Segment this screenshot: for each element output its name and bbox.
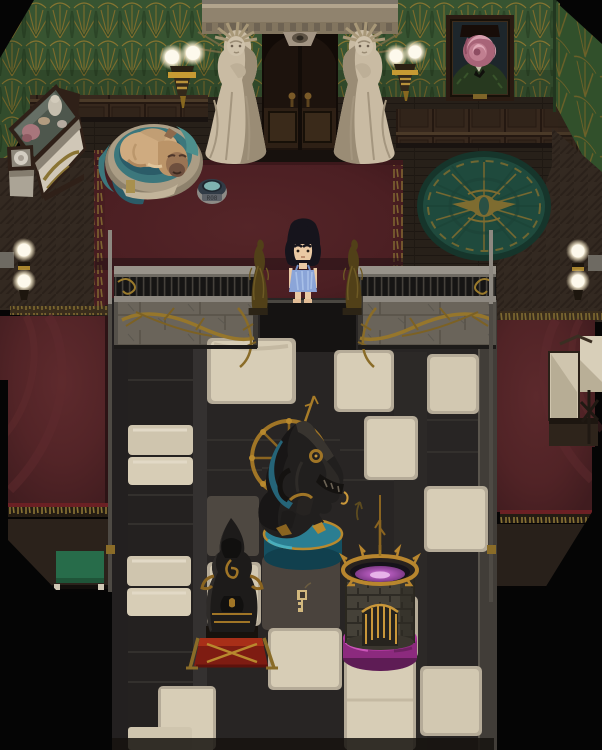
svg-text:R08: R08 — [207, 195, 218, 202]
